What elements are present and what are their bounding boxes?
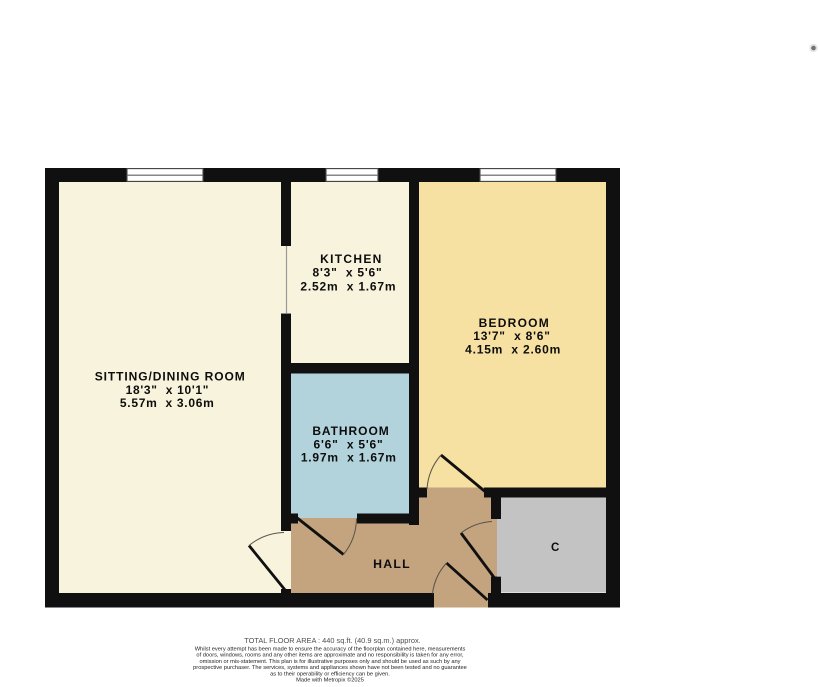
svg-text:18'3" x 10'1": 18'3" x 10'1" xyxy=(126,383,210,397)
svg-text:of doors, windows, rooms and a: of doors, windows, rooms and any other i… xyxy=(196,653,464,659)
svg-text:13'7" x 8'6": 13'7" x 8'6" xyxy=(473,329,551,343)
svg-text:TOTAL FLOOR AREA : 440 sq.ft.: TOTAL FLOOR AREA : 440 sq.ft. (40.9 sq.m… xyxy=(244,636,421,645)
svg-text:2.52m x 1.67m: 2.52m x 1.67m xyxy=(300,279,396,293)
svg-text:prospective purchaser. The ser: prospective purchaser. The services, sys… xyxy=(193,665,467,671)
svg-text:5.57m x 3.06m: 5.57m x 3.06m xyxy=(120,396,215,410)
svg-text:KITCHEN: KITCHEN xyxy=(320,252,382,266)
svg-text:8'3" x 5'6": 8'3" x 5'6" xyxy=(312,266,382,280)
svg-text:BATHROOM: BATHROOM xyxy=(312,424,389,438)
svg-text:4.15m x 2.60m: 4.15m x 2.60m xyxy=(465,342,561,356)
svg-text:C: C xyxy=(551,542,559,554)
svg-text:Made with Metropix ©2025: Made with Metropix ©2025 xyxy=(296,677,364,684)
svg-text:omission or mis-statement. Thi: omission or mis-statement. This plan is … xyxy=(199,659,460,665)
svg-text:as to their operability or eff: as to their operability or efficiency ca… xyxy=(270,671,390,677)
svg-text:6'6" x 5'6": 6'6" x 5'6" xyxy=(313,437,383,451)
svg-text:HALL: HALL xyxy=(373,557,411,571)
svg-text:1.97m x 1.67m: 1.97m x 1.67m xyxy=(301,451,397,465)
svg-text:BEDROOM: BEDROOM xyxy=(479,316,550,330)
svg-text:SITTING/DINING ROOM: SITTING/DINING ROOM xyxy=(95,370,246,384)
svg-text:Whilst every attempt has been: Whilst every attempt has been made to en… xyxy=(195,646,466,652)
